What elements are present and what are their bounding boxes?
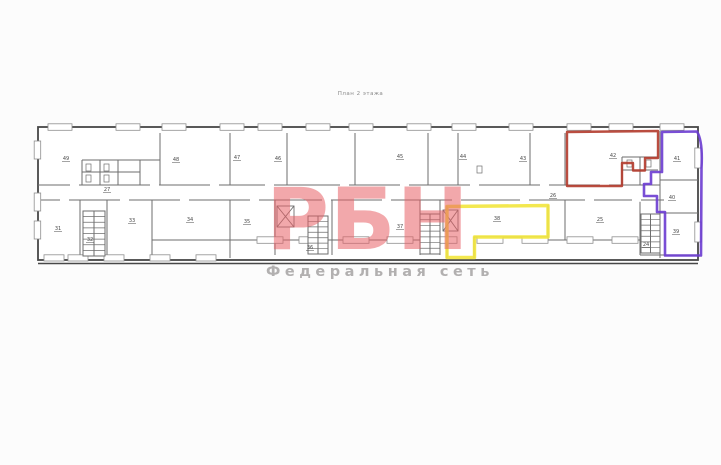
window: [257, 237, 283, 244]
floor-plan-drawing: 4948474645444342414039272631323334353637…: [0, 0, 721, 465]
room-label: 31: [55, 226, 61, 232]
staircase: [420, 214, 440, 254]
fixture: [104, 175, 109, 182]
room-label: 42: [610, 153, 616, 159]
window: [34, 141, 41, 159]
window: [196, 255, 216, 261]
window: [609, 124, 633, 131]
room-label: 26: [550, 193, 556, 199]
window: [567, 237, 593, 244]
window: [452, 124, 476, 131]
door-opening: [400, 183, 409, 187]
room-label: 24: [643, 242, 649, 248]
room-label: 34: [187, 217, 193, 223]
window: [34, 221, 41, 239]
window: [349, 124, 373, 131]
room-label: 38: [494, 216, 500, 222]
door-opening: [632, 198, 641, 202]
window: [343, 237, 369, 244]
room-label: 33: [129, 218, 135, 224]
room-label: 36: [307, 245, 313, 251]
fixture: [477, 166, 482, 173]
window: [48, 124, 72, 131]
door-opening: [452, 198, 461, 202]
door-opening: [60, 198, 69, 202]
door-opening: [265, 183, 274, 187]
window: [220, 124, 244, 131]
window: [44, 255, 64, 261]
fixture: [646, 160, 651, 167]
door-opening: [250, 198, 259, 202]
room-label: 46: [275, 156, 281, 162]
window: [162, 124, 186, 131]
elevator-shaft: [443, 210, 458, 231]
door-opening: [180, 198, 189, 202]
door-opening: [150, 183, 159, 187]
window: [104, 255, 124, 261]
room-label: 43: [520, 156, 526, 162]
window: [660, 124, 684, 131]
window: [258, 124, 282, 131]
room-label: 35: [244, 219, 250, 225]
door-opening: [540, 183, 549, 187]
window: [612, 237, 638, 244]
door-opening: [382, 198, 391, 202]
room-label: 27: [104, 187, 110, 193]
fixture: [86, 164, 91, 171]
room-label: 48: [173, 157, 179, 163]
door-opening: [120, 198, 129, 202]
fixture: [104, 164, 109, 171]
staircase: [83, 211, 105, 256]
room-label: 44: [460, 154, 466, 160]
room-label: 25: [597, 217, 603, 223]
room-label: 45: [397, 154, 403, 160]
elevator-shaft: [277, 206, 294, 227]
room-label: 41: [674, 156, 680, 162]
floor-plan-page: План 2 этажа: [0, 0, 721, 465]
door-opening: [210, 183, 219, 187]
room-label: 37: [397, 224, 403, 230]
window: [116, 124, 140, 131]
door-opening: [70, 183, 79, 187]
window: [387, 237, 413, 244]
room-label: 32: [87, 237, 93, 243]
window: [509, 124, 533, 131]
room-label: 49: [63, 156, 69, 162]
window: [567, 124, 591, 131]
door-opening: [340, 183, 349, 187]
door-opening: [585, 198, 594, 202]
fixture: [86, 175, 91, 182]
door-opening: [520, 198, 529, 202]
window: [150, 255, 170, 261]
room-label: 40: [669, 195, 675, 201]
room-label: 39: [673, 229, 679, 235]
door-opening: [322, 198, 331, 202]
door-opening: [470, 183, 479, 187]
room-label: 47: [234, 155, 240, 161]
window: [34, 193, 41, 211]
window: [407, 124, 431, 131]
window: [306, 124, 330, 131]
